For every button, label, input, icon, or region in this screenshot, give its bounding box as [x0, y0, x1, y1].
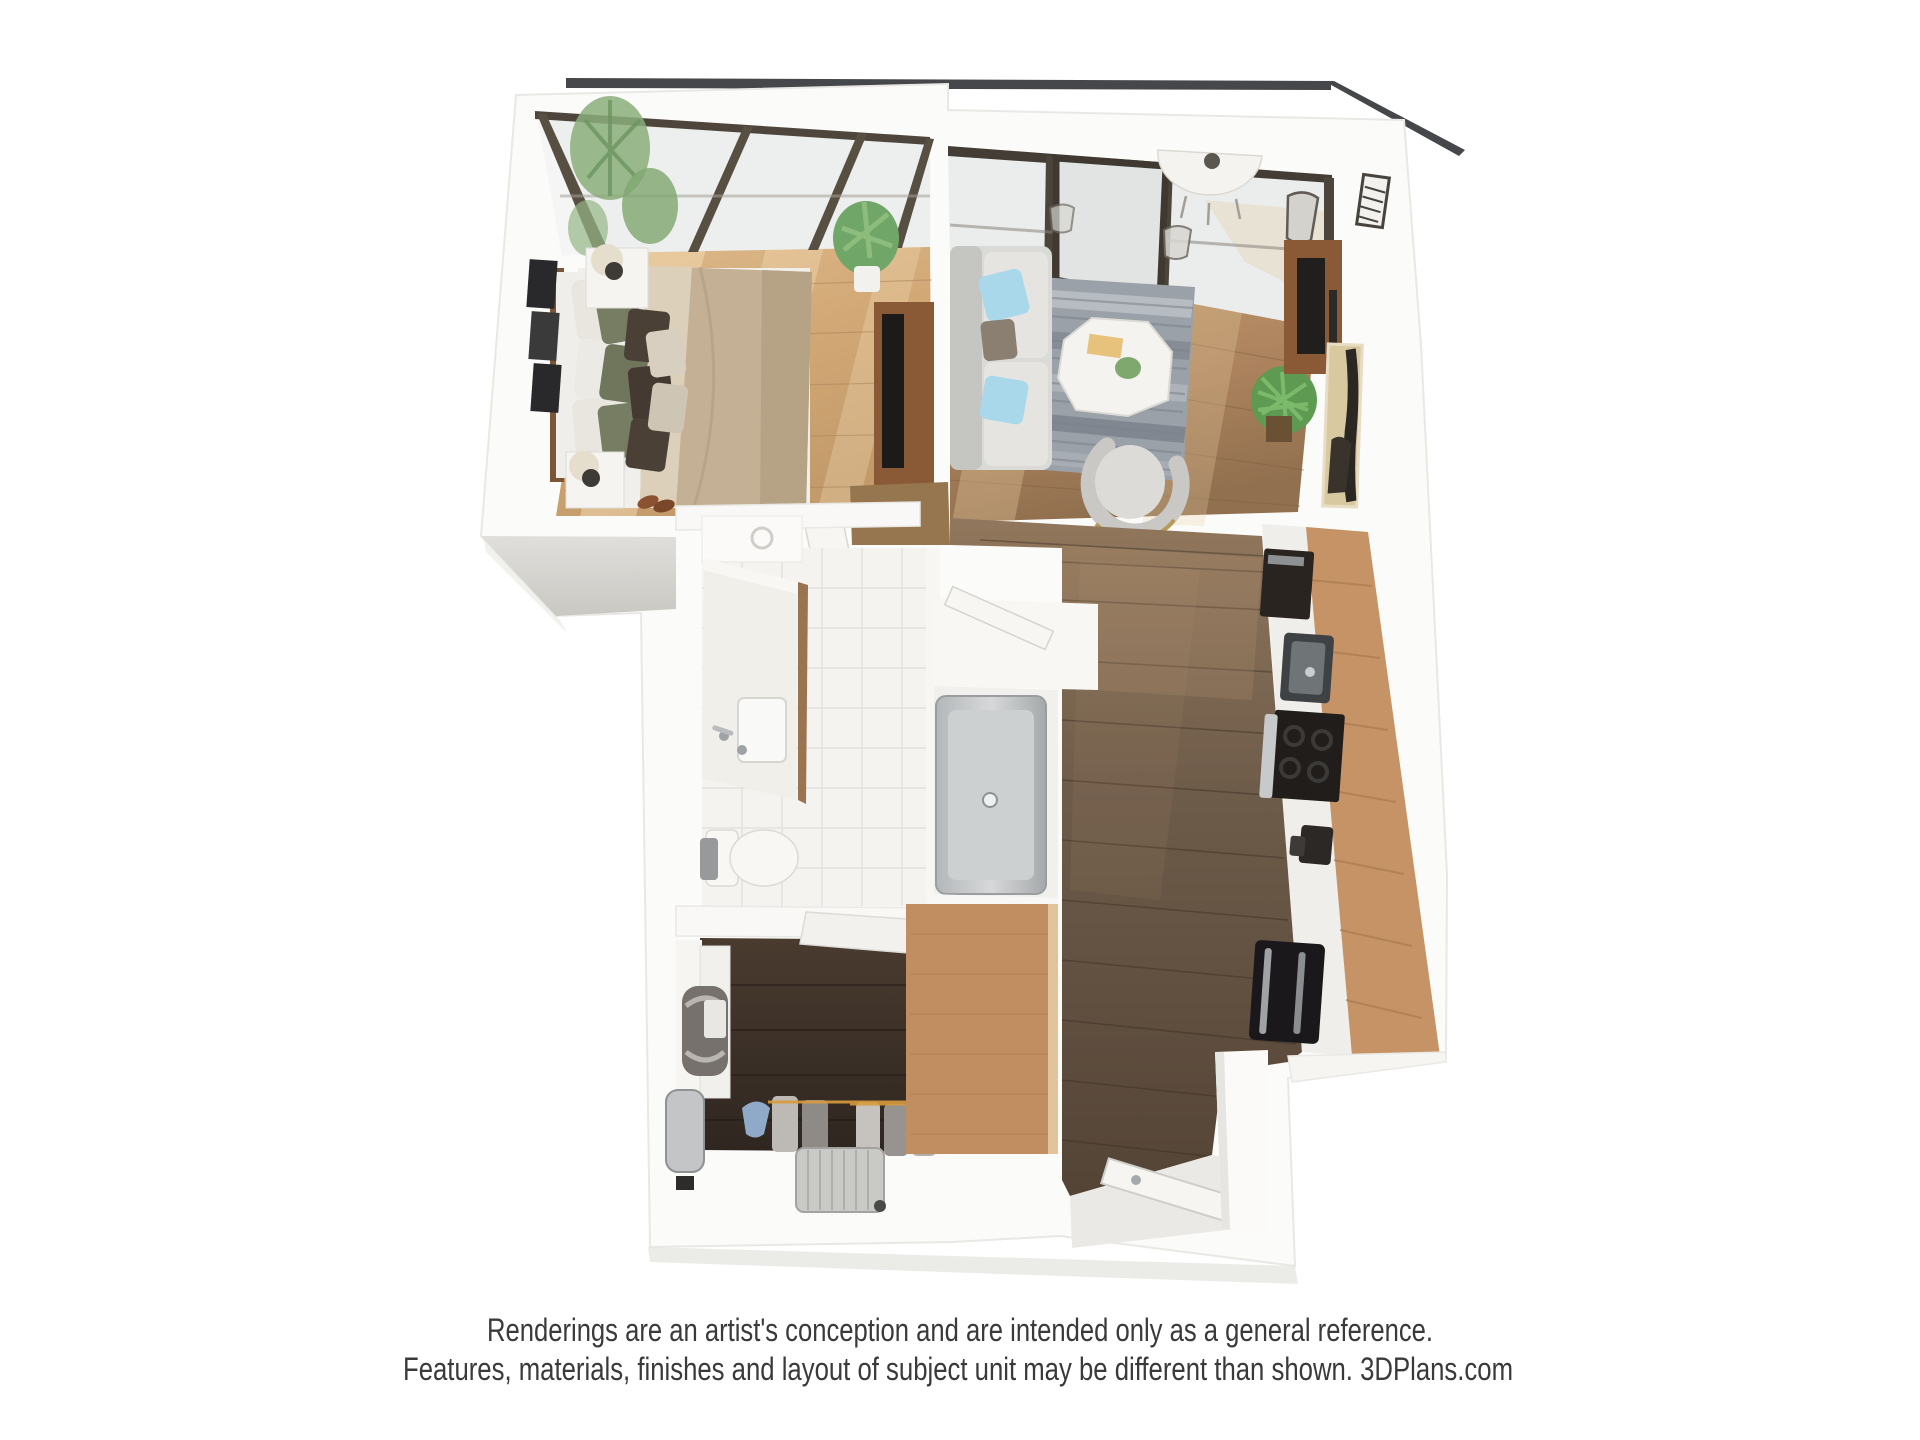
svg-text:Renderings are an artist's con: Renderings are an artist's conception an…: [487, 1312, 1433, 1348]
svg-text:Features, materials, finishes: Features, materials, finishes and layout…: [403, 1351, 1513, 1387]
